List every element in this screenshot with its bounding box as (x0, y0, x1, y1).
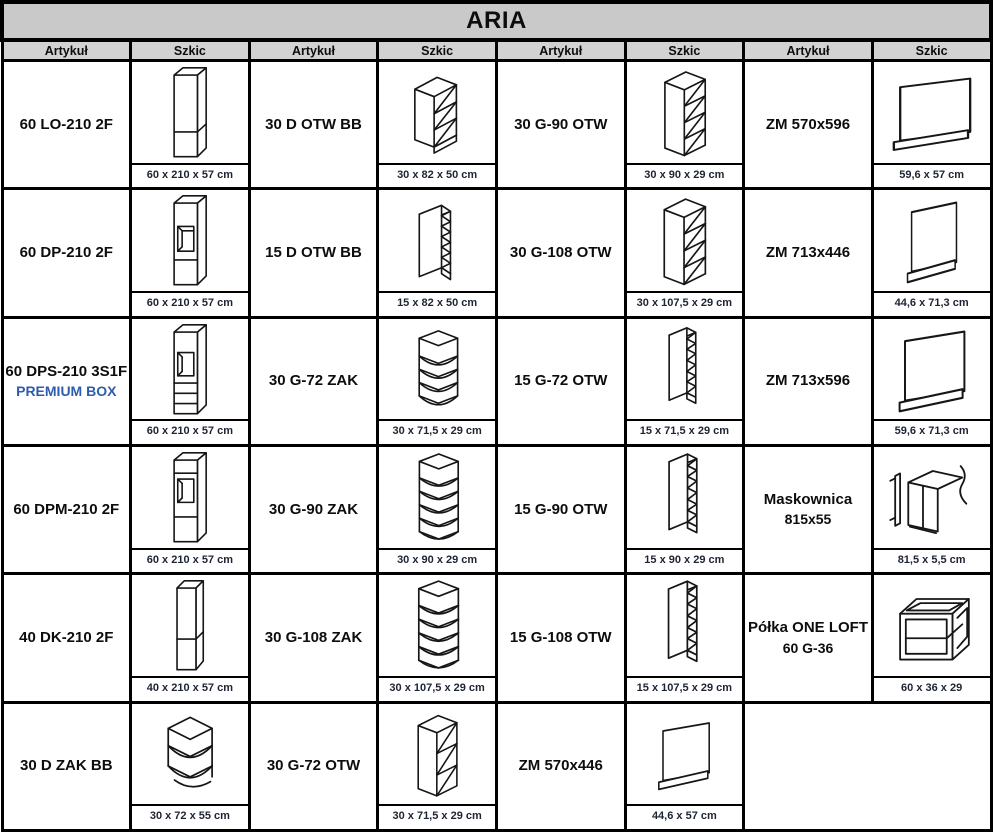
article-cell: 30 G-72 ZAK (249, 317, 378, 445)
sketch-cell: 44,6 x 71,3 cm (872, 189, 991, 317)
article-cell: 15 G-90 OTW (496, 445, 625, 573)
article-cell: 30 G-72 OTW (249, 702, 378, 830)
col-header-szkic: Szkic (625, 40, 744, 61)
article-name: 30 G-90 OTW (498, 115, 624, 135)
sketch-cell: 60 x 210 x 57 cm (131, 61, 250, 189)
oven-housing-drawers-sketch-icon (161, 320, 219, 419)
dimension-label: 60 x 210 x 57 cm (132, 291, 248, 314)
sketch-cell: 60 x 36 x 29 (872, 574, 991, 702)
sketch-cell: 15 x 71,5 x 29 cm (625, 317, 744, 445)
sketch-cell: 30 x 72 x 55 cm (131, 702, 250, 830)
column-header-row: Artykuł Szkic Artykuł Szkic Artykuł Szki… (2, 40, 991, 61)
dimension-label: 15 x 71,5 x 29 cm (627, 419, 743, 442)
article-name: 60 DPS-210 3S1F (4, 362, 130, 382)
dimension-label: 15 x 90 x 29 cm (627, 548, 743, 571)
article-name: ZM 713x446 (745, 243, 871, 263)
dimension-label: 59,6 x 57 cm (874, 163, 990, 186)
dimension-label: 15 x 82 x 50 cm (379, 291, 495, 314)
article-subtitle: 60 G-36 (745, 639, 871, 658)
col-header-szkic: Szkic (378, 40, 497, 61)
article-name: 60 DPM-210 2F (4, 500, 130, 520)
sketch-cell: 30 x 90 x 29 cm (378, 445, 497, 573)
table-row: 30 D ZAK BB 30 x 72 x 55 cm 30 G-72 OTW … (2, 702, 991, 830)
sketch-cell: 30 x 71,5 x 29 cm (378, 702, 497, 830)
appliance-front-panel-sketch-icon (887, 322, 977, 418)
sketch-cell: 60 x 210 x 57 cm (131, 189, 250, 317)
article-name: 60 DP-210 2F (4, 243, 130, 263)
article-name: 40 DK-210 2F (4, 628, 130, 648)
dimension-label: 30 x 71,5 x 29 cm (379, 804, 495, 827)
article-name: 15 D OTW BB (251, 243, 377, 263)
corner-wall-shelf-sketch-icon (400, 449, 475, 548)
article-name: ZM 570x446 (498, 756, 624, 776)
col-header-artykul: Artykuł (2, 40, 131, 61)
article-cell: 30 G-108 ZAK (249, 574, 378, 702)
sketch-cell: 81,5 x 5,5 cm (872, 445, 991, 573)
article-subtitle-premium-box: PREMIUM BOX (4, 382, 130, 401)
dimension-label: 44,6 x 71,3 cm (874, 291, 990, 314)
article-cell: 30 G-90 OTW (496, 61, 625, 189)
open-frame-shelf-sketch-icon (887, 581, 977, 671)
article-cell: 60 DPS-210 3S1F PREMIUM BOX (2, 317, 131, 445)
dimension-label: 15 x 107,5 x 29 cm (627, 676, 743, 699)
appliance-front-panel-sketch-icon (879, 70, 985, 156)
article-cell: ZM 713x446 (744, 189, 873, 317)
dimension-label: 60 x 210 x 57 cm (132, 163, 248, 186)
article-name: 30 G-72 ZAK (251, 371, 377, 391)
article-name: 30 D ZAK BB (4, 756, 130, 776)
article-cell: 30 G-108 OTW (496, 189, 625, 317)
table-row: 60 DPS-210 3S1F PREMIUM BOX 60 x 210 x 5… (2, 317, 991, 445)
article-name: ZM 570x596 (745, 115, 871, 135)
article-cell: 60 DP-210 2F (2, 189, 131, 317)
sketch-cell: 30 x 107,5 x 29 cm (378, 574, 497, 702)
open-wall-cabinet-sketch-icon (647, 64, 722, 163)
col-header-artykul: Artykuł (249, 40, 378, 61)
sketch-cell: 59,6 x 57 cm (872, 61, 991, 189)
oven-housing-sketch-icon (161, 192, 219, 291)
table-row: 40 DK-210 2F 40 x 210 x 57 cm 30 G-108 Z… (2, 574, 991, 702)
dimension-label: 30 x 72 x 55 cm (132, 804, 248, 827)
corner-base-open-sketch-icon (151, 708, 229, 802)
open-wall-cabinet-slim-sketch-icon (646, 449, 723, 548)
article-cell: ZM 570x596 (744, 61, 873, 189)
sketch-cell: 30 x 90 x 29 cm (625, 61, 744, 189)
open-wall-cabinet-sketch-icon (401, 707, 473, 803)
open-base-cabinet-slim-sketch-icon (400, 195, 474, 287)
article-name: Maskownica (745, 490, 871, 510)
article-subtitle: 815x55 (745, 510, 871, 529)
dimension-label: 30 x 71,5 x 29 cm (379, 419, 495, 442)
col-header-szkic: Szkic (131, 40, 250, 61)
dimension-label: 60 x 36 x 29 (874, 676, 990, 699)
sketch-cell: 15 x 82 x 50 cm (378, 189, 497, 317)
article-cell: 40 DK-210 2F (2, 574, 131, 702)
article-cell: 15 G-108 OTW (496, 574, 625, 702)
article-cell: 30 D ZAK BB (2, 702, 131, 830)
sketch-cell: 30 x 107,5 x 29 cm (625, 189, 744, 317)
page-title: ARIA (2, 2, 991, 40)
dimension-label: 30 x 90 x 29 cm (627, 163, 743, 186)
table-row: 60 LO-210 2F 60 x 210 x 57 cm 30 D OTW B… (2, 61, 991, 189)
col-header-artykul: Artykuł (744, 40, 873, 61)
article-cell: Maskownica 815x55 (744, 445, 873, 573)
article-name: 60 LO-210 2F (4, 115, 130, 135)
corner-wall-shelf-sketch-icon (400, 322, 474, 418)
sketch-cell: 30 x 71,5 x 29 cm (378, 317, 497, 445)
sketch-cell: 30 x 82 x 50 cm (378, 61, 497, 189)
article-cell: 60 DPM-210 2F (2, 445, 131, 573)
dimension-label: 40 x 210 x 57 cm (132, 676, 248, 699)
tall-cabinet-sketch-icon (161, 64, 219, 163)
dimension-label: 30 x 82 x 50 cm (379, 163, 495, 186)
article-name: 30 G-108 ZAK (251, 628, 377, 648)
sketch-cell: 15 x 90 x 29 cm (625, 445, 744, 573)
article-cell: 15 G-72 OTW (496, 317, 625, 445)
dimension-label: 44,6 x 57 cm (627, 804, 743, 827)
col-header-artykul: Artykuł (496, 40, 625, 61)
article-name: 15 G-90 OTW (498, 500, 624, 520)
article-cell: ZM 570x446 (496, 702, 625, 830)
title-bar: ARIA (2, 2, 991, 40)
dimension-label: 81,5 x 5,5 cm (874, 548, 990, 571)
appliance-front-panel-sketch-icon (649, 715, 719, 795)
appliance-front-panel-sketch-icon (898, 193, 966, 289)
article-cell: Półka ONE LOFT 60 G-36 (744, 574, 873, 702)
oven-microwave-housing-sketch-icon (161, 449, 219, 548)
col-header-szkic: Szkic (872, 40, 991, 61)
article-name: 30 G-108 OTW (498, 243, 624, 263)
article-name: 30 G-72 OTW (251, 756, 377, 776)
table-row: 60 DP-210 2F 60 x 210 x 57 cm 15 D OTW B… (2, 189, 991, 317)
article-cell: 15 D OTW BB (249, 189, 378, 317)
article-name: 30 D OTW BB (251, 115, 377, 135)
article-name: Półka ONE LOFT (745, 618, 871, 638)
sketch-cell: 59,6 x 71,3 cm (872, 317, 991, 445)
sketch-cell: 44,6 x 57 cm (625, 702, 744, 830)
dimension-label: 60 x 210 x 57 cm (132, 548, 248, 571)
article-name: 15 G-108 OTW (498, 628, 624, 648)
dimension-label: 30 x 107,5 x 29 cm (627, 291, 743, 314)
dimension-label: 60 x 210 x 57 cm (132, 419, 248, 442)
article-cell: 30 D OTW BB (249, 61, 378, 189)
tall-cabinet-slim-sketch-icon (161, 577, 219, 676)
corner-wall-shelf-sketch-icon (399, 577, 475, 676)
dimension-label: 59,6 x 71,3 cm (874, 419, 990, 442)
empty-cell (744, 702, 991, 830)
cover-strip-sketch-icon (887, 453, 977, 543)
table-row: 60 DPM-210 2F 60 x 210 x 57 cm 30 G-90 Z… (2, 445, 991, 573)
article-cell: 30 G-90 ZAK (249, 445, 378, 573)
article-cell: ZM 713x596 (744, 317, 873, 445)
open-wall-cabinet-slim-sketch-icon (645, 577, 723, 676)
sketch-cell: 15 x 107,5 x 29 cm (625, 574, 744, 702)
sketch-cell: 40 x 210 x 57 cm (131, 574, 250, 702)
article-name: ZM 713x596 (745, 371, 871, 391)
open-base-cabinet-sketch-icon (400, 67, 474, 159)
article-name: 15 G-72 OTW (498, 371, 624, 391)
product-table: ARIA Artykuł Szkic Artykuł Szkic Artykuł… (0, 0, 993, 832)
article-cell: 60 LO-210 2F (2, 61, 131, 189)
dimension-label: 30 x 107,5 x 29 cm (379, 676, 495, 699)
dimension-label: 30 x 90 x 29 cm (379, 548, 495, 571)
sketch-cell: 60 x 210 x 57 cm (131, 445, 250, 573)
open-wall-cabinet-slim-sketch-icon (647, 322, 721, 418)
article-name: 30 G-90 ZAK (251, 500, 377, 520)
open-wall-cabinet-sketch-icon (646, 192, 722, 291)
sketch-cell: 60 x 210 x 57 cm (131, 317, 250, 445)
